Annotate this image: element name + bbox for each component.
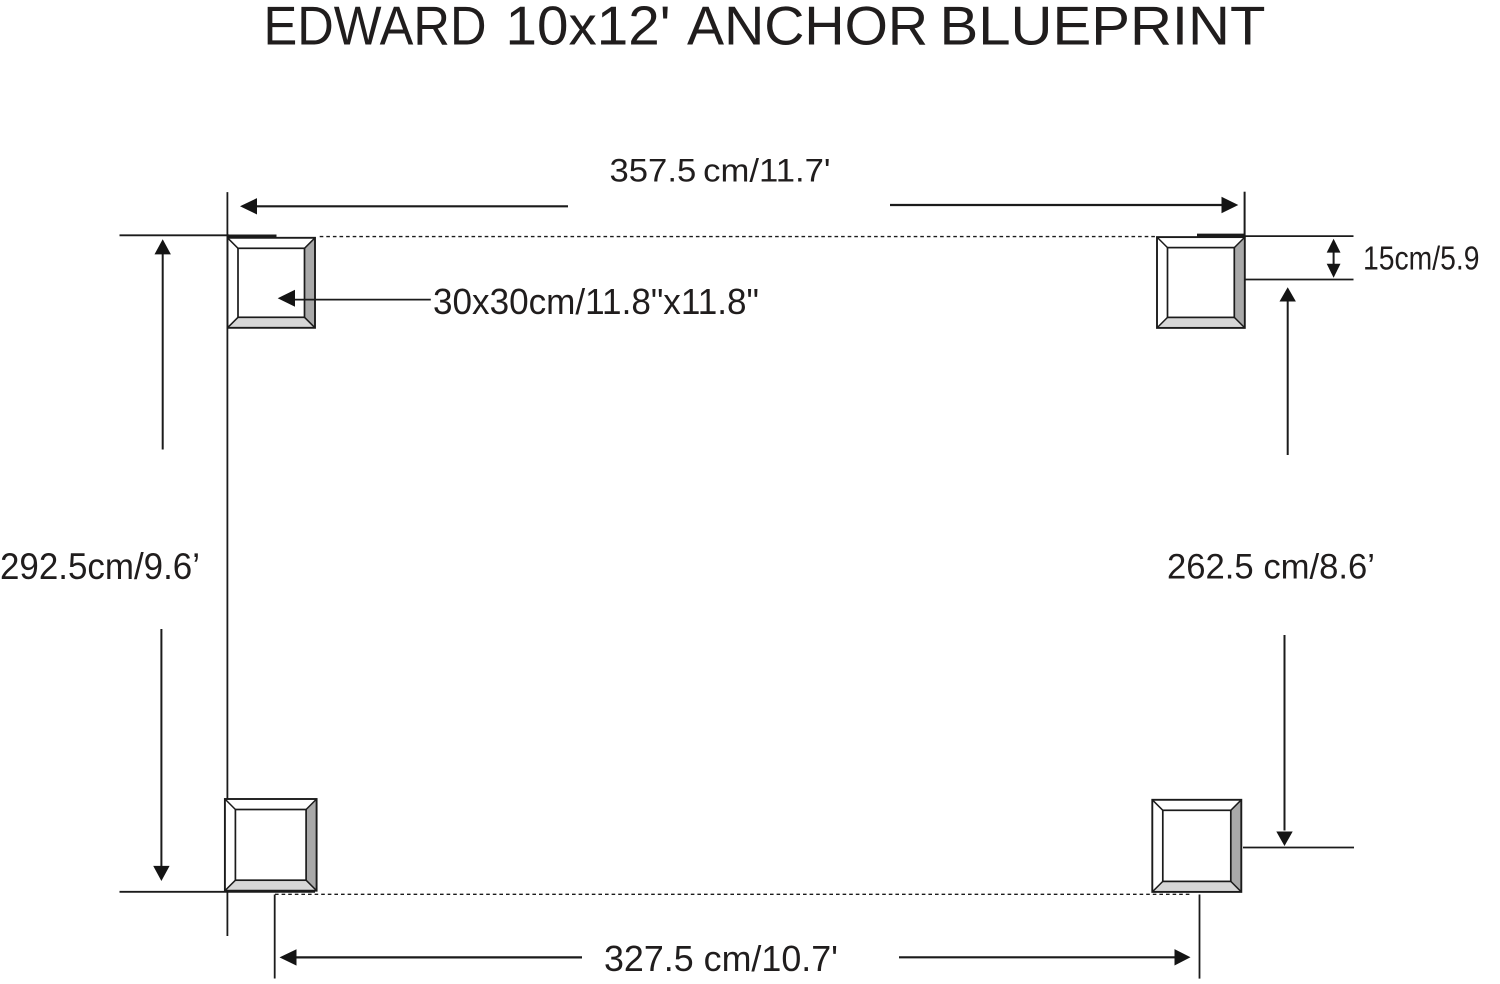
svg-text:15cm/5.9: 15cm/5.9 (1363, 241, 1480, 278)
svg-text:BLUEPRINT: BLUEPRINT (940, 0, 1266, 56)
svg-text:327.5 cm/10.7': 327.5 cm/10.7' (604, 938, 838, 979)
svg-text:262.5 cm/8.6’: 262.5 cm/8.6’ (1167, 548, 1375, 587)
svg-text:30x30cm/11.8"x11.8": 30x30cm/11.8"x11.8" (433, 282, 759, 322)
svg-text:ANCHOR: ANCHOR (687, 0, 928, 56)
svg-text:292.5cm/9.6’: 292.5cm/9.6’ (0, 546, 200, 587)
svg-text:EDWARD: EDWARD (264, 0, 487, 56)
svg-text:357.5 cm/11.7': 357.5 cm/11.7' (610, 153, 831, 189)
svg-text:10x12': 10x12' (506, 0, 671, 56)
